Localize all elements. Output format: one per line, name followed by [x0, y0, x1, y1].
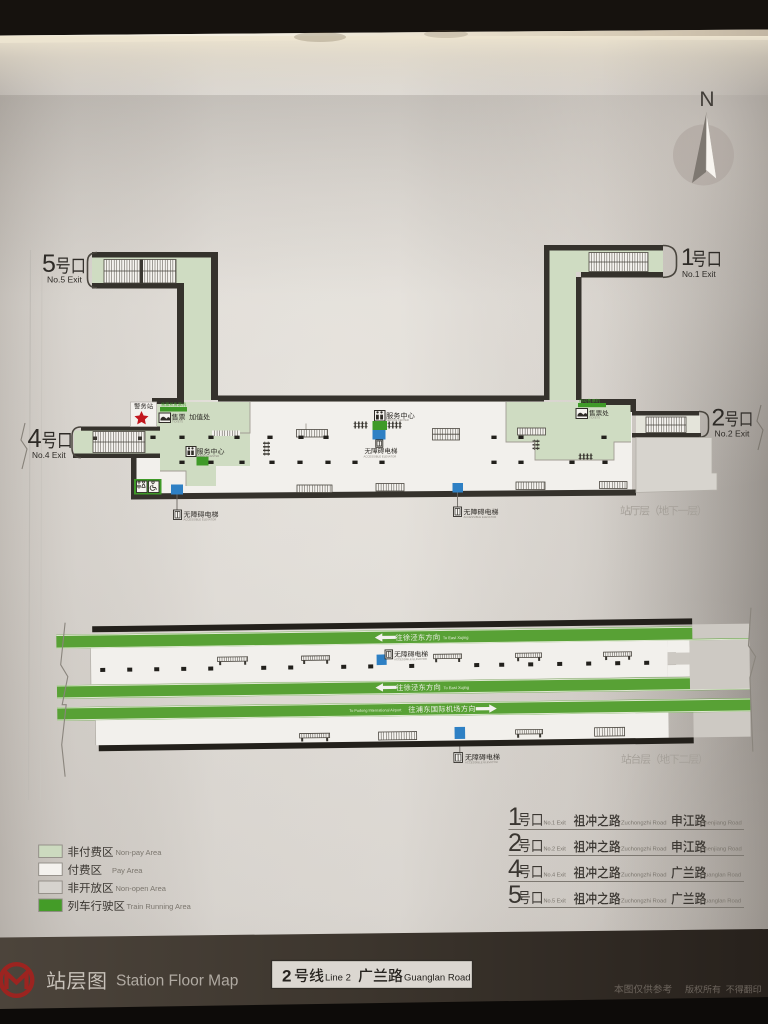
svg-text:Pay Area: Pay Area — [112, 866, 143, 875]
svg-text:Line 2: Line 2 — [325, 973, 351, 984]
svg-text:Non-open Area: Non-open Area — [116, 884, 167, 893]
svg-text:No.4 Exit: No.4 Exit — [544, 873, 567, 879]
svg-text:Zuchongzhi Road: Zuchongzhi Road — [621, 847, 666, 853]
svg-text:SERVICE CENTER: SERVICE CENTER — [386, 418, 409, 422]
svg-text:ACCESSIBLE ELEVATOR: ACCESSIBLE ELEVATOR — [364, 455, 397, 459]
svg-text:5: 5 — [508, 881, 522, 909]
svg-text:No.4 Exit: No.4 Exit — [32, 450, 66, 460]
svg-text:TICKETS: TICKETS — [172, 420, 183, 424]
svg-text:ACCESSIBLE ELEVATOR: ACCESSIBLE ELEVATOR — [464, 515, 497, 519]
svg-text:4: 4 — [28, 425, 42, 453]
svg-text:Guanglan Road: Guanglan Road — [701, 899, 742, 905]
svg-text:N: N — [699, 88, 714, 111]
svg-text:Zuchongzhi Road: Zuchongzhi Road — [621, 899, 666, 905]
svg-text:4: 4 — [508, 855, 522, 883]
svg-text:1: 1 — [508, 803, 522, 831]
svg-text:Guanglan Road: Guanglan Road — [701, 873, 742, 879]
svg-text:TICKETS: TICKETS — [589, 416, 600, 420]
svg-text:No.1 Exit: No.1 Exit — [682, 269, 716, 279]
svg-text:ACCESSIBLE ELEVATOR: ACCESSIBLE ELEVATOR — [394, 657, 427, 661]
svg-text:Zuchongzhi Road: Zuchongzhi Road — [621, 873, 666, 879]
svg-text:ACCESSIBLE ELEVATOR: ACCESSIBLE ELEVATOR — [184, 517, 217, 521]
svg-text:Zuchongzhi Road: Zuchongzhi Road — [621, 821, 666, 827]
svg-text:ACCESSIBLE ELEVATOR: ACCESSIBLE ELEVATOR — [465, 760, 498, 764]
svg-text:Shenjiang Road: Shenjiang Road — [701, 821, 742, 827]
svg-text:Non-pay Area: Non-pay Area — [116, 848, 163, 857]
svg-text:2: 2 — [508, 829, 522, 857]
svg-text:No.1 Exit: No.1 Exit — [544, 821, 567, 827]
svg-text:No.5 Exit: No.5 Exit — [47, 275, 82, 285]
svg-text:No.2 Exit: No.2 Exit — [715, 428, 750, 438]
svg-text:Station Floor Map: Station Floor Map — [116, 973, 238, 990]
svg-text:1: 1 — [681, 244, 694, 271]
svg-text:Guanglan Road: Guanglan Road — [404, 973, 471, 984]
svg-text:2: 2 — [282, 967, 291, 986]
svg-text:Train Running Area: Train Running Area — [127, 902, 192, 911]
svg-text:SERVICE CENTER: SERVICE CENTER — [197, 454, 220, 458]
svg-text:To East Xujing: To East Xujing — [443, 685, 469, 690]
svg-text:Shenjiang Road: Shenjiang Road — [701, 847, 742, 853]
svg-text:To Pudong International Airpor: To Pudong International Airport — [349, 708, 402, 713]
svg-text:No.2 Exit: No.2 Exit — [544, 847, 567, 853]
svg-text:To East Xujing: To East Xujing — [443, 635, 469, 640]
svg-text:No.5 Exit: No.5 Exit — [544, 899, 567, 905]
